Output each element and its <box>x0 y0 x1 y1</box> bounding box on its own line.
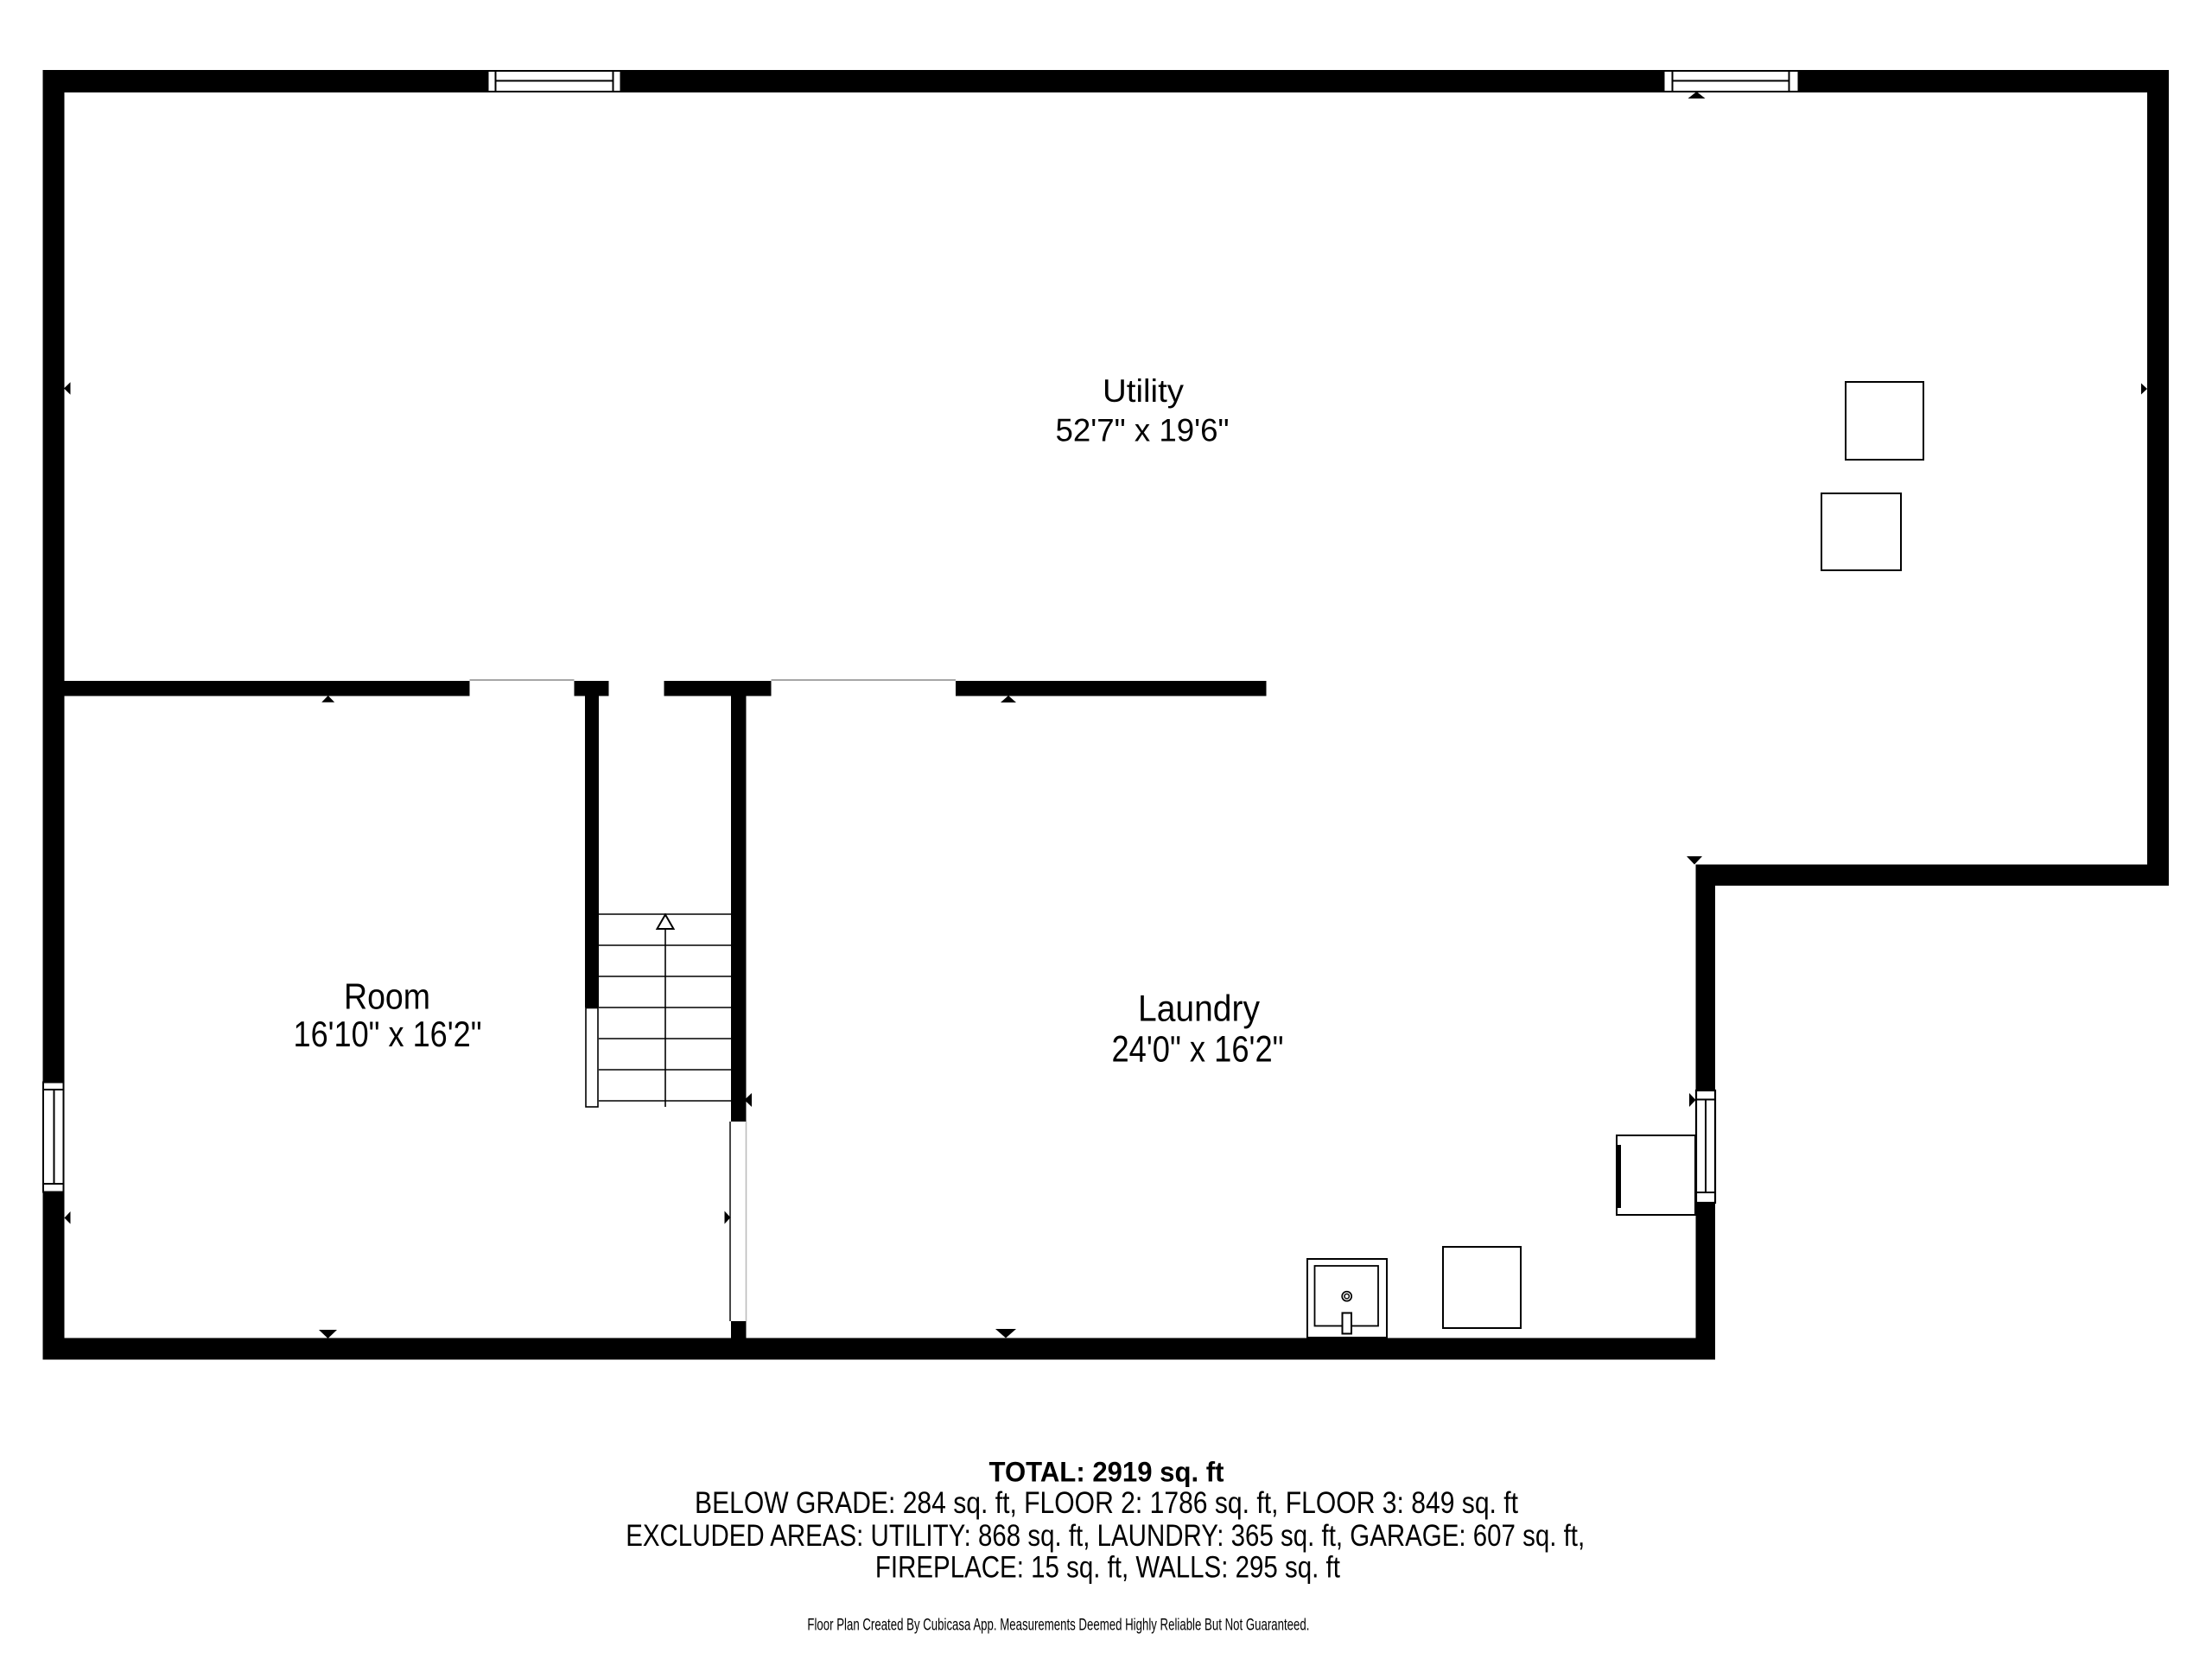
svg-text:Floor Plan Created By Cubicasa: Floor Plan Created By Cubicasa App. Meas… <box>807 1617 1309 1635</box>
svg-text:BELOW GRADE: 284 sq. ft, FLOOR: BELOW GRADE: 284 sq. ft, FLOOR 2: 1786 s… <box>695 1486 1518 1520</box>
svg-text:52'7" x 19'6": 52'7" x 19'6" <box>1056 413 1230 448</box>
svg-text:Utility: Utility <box>1103 373 1185 409</box>
svg-text:16'10" x 16'2": 16'10" x 16'2" <box>294 1014 482 1054</box>
svg-text:Room: Room <box>344 976 430 1016</box>
svg-text:24'0" x 16'2": 24'0" x 16'2" <box>1112 1029 1284 1071</box>
svg-text:EXCLUDED AREAS: UTILITY: 868 s: EXCLUDED AREAS: UTILITY: 868 sq. ft, LAU… <box>626 1519 1585 1553</box>
svg-text:Laundry: Laundry <box>1138 988 1260 1029</box>
svg-text:FIREPLACE: 15 sq. ft, WALLS: 2: FIREPLACE: 15 sq. ft, WALLS: 295 sq. ft <box>875 1551 1340 1585</box>
svg-text:TOTAL: 2919 sq. ft: TOTAL: 2919 sq. ft <box>989 1457 1224 1488</box>
